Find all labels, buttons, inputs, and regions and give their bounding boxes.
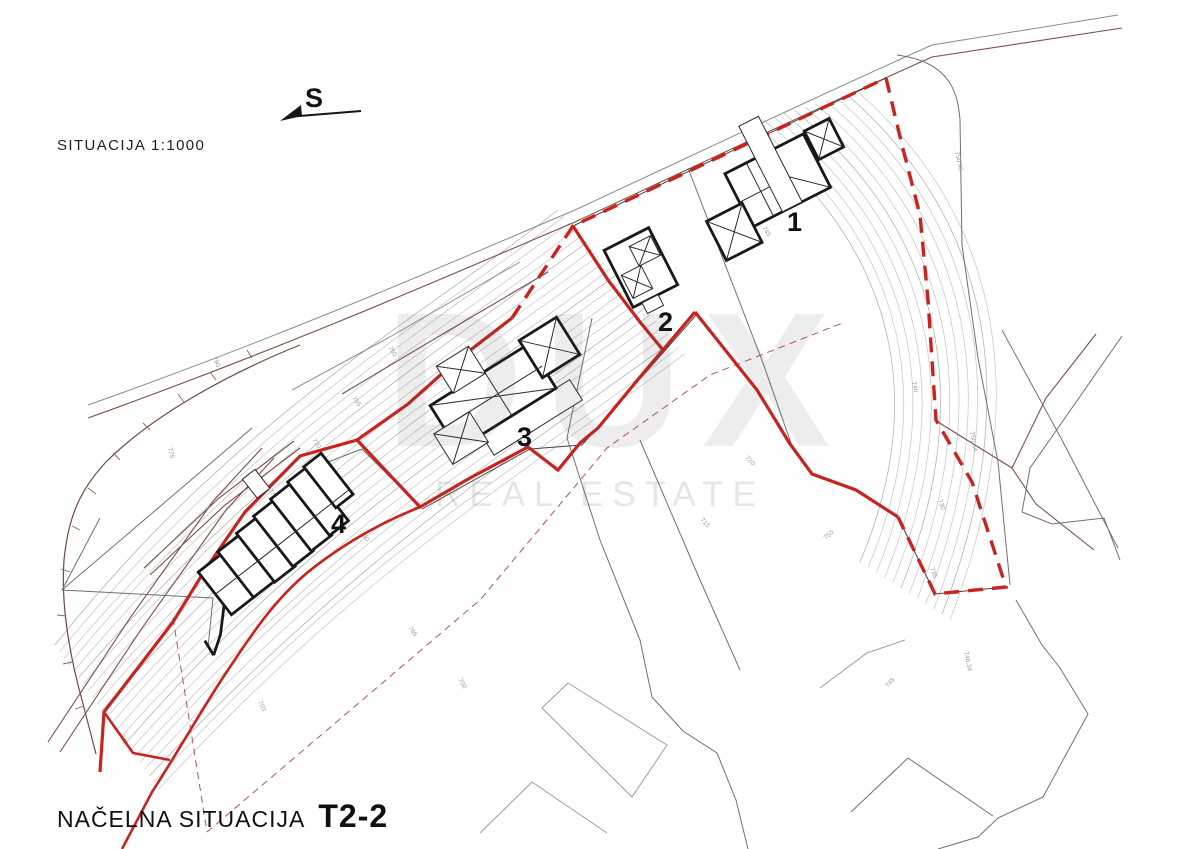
parcel-line [908,758,993,816]
north-arrow-head [280,105,302,121]
elevation-label: 780 [210,356,221,369]
elevation-label: 765 [406,625,418,638]
road-line [1012,334,1096,468]
north-arrow: S [280,83,361,121]
parcel-line [938,600,1088,849]
elevation-label: 715 [699,517,712,530]
site-plan-drawing: 750.45750.44746.347457507457357307407207… [0,0,1200,849]
parcel-line [480,782,607,833]
boundary-solid [695,312,898,517]
elevation-label: 740 [910,381,919,393]
parcel-line [640,440,740,670]
parcel-line [897,55,1010,585]
elevation-label: 720 [744,455,757,468]
parcel-line [542,683,667,797]
site-plan-sheet: 750.45750.44746.347457507457357307407207… [0,0,1200,849]
elevation-label: 770 [310,437,322,450]
building-2 [604,228,683,318]
building-label-2: 2 [658,307,673,337]
elevation-label: 745 [760,225,772,238]
elevation-labels: 750.45750.44746.347457507457357307407207… [118,151,978,746]
elevation-label: 750.45 [953,151,964,172]
parcel-lines [62,55,1122,849]
parcel-line [851,758,908,812]
scale-label: SITUACIJA 1:1000 [57,137,205,154]
parcel-line [1022,512,1120,560]
contour-line [131,315,651,750]
parcel-line [1022,336,1122,512]
elevation-label: 730 [936,498,946,511]
contour-line [93,262,604,697]
elevation-label: 775 [166,447,175,459]
building-tail [193,605,244,655]
elevation-label: 735 [928,566,938,579]
elevation-label: 745 [884,676,897,689]
elevation-label: 750 [823,529,836,542]
contour-line [140,328,662,763]
elevation-label: 746.34 [962,651,973,672]
boundary-red [100,78,1006,849]
building-label-3: 3 [517,422,532,452]
road-line [1012,468,1094,550]
slope-ticks [57,350,252,709]
north-symbol: S [305,83,323,113]
road-line [88,28,1122,418]
building-label-1: 1 [787,207,802,237]
drawing-title: NAČELNA SITUACIJA T2-2 [57,798,388,835]
parcel-line [1002,330,1118,548]
parcel-line [62,518,100,590]
drawing-code: T2-2 [318,798,388,835]
elevation-label: 760 [386,345,398,358]
elevation-label: 703 [256,700,267,713]
building-label-4: 4 [331,509,346,539]
elevation-label: 700 [456,677,468,690]
drawing-title-text: NAČELNA SITUACIJA [57,806,305,833]
boundary-dashed [886,78,1006,594]
